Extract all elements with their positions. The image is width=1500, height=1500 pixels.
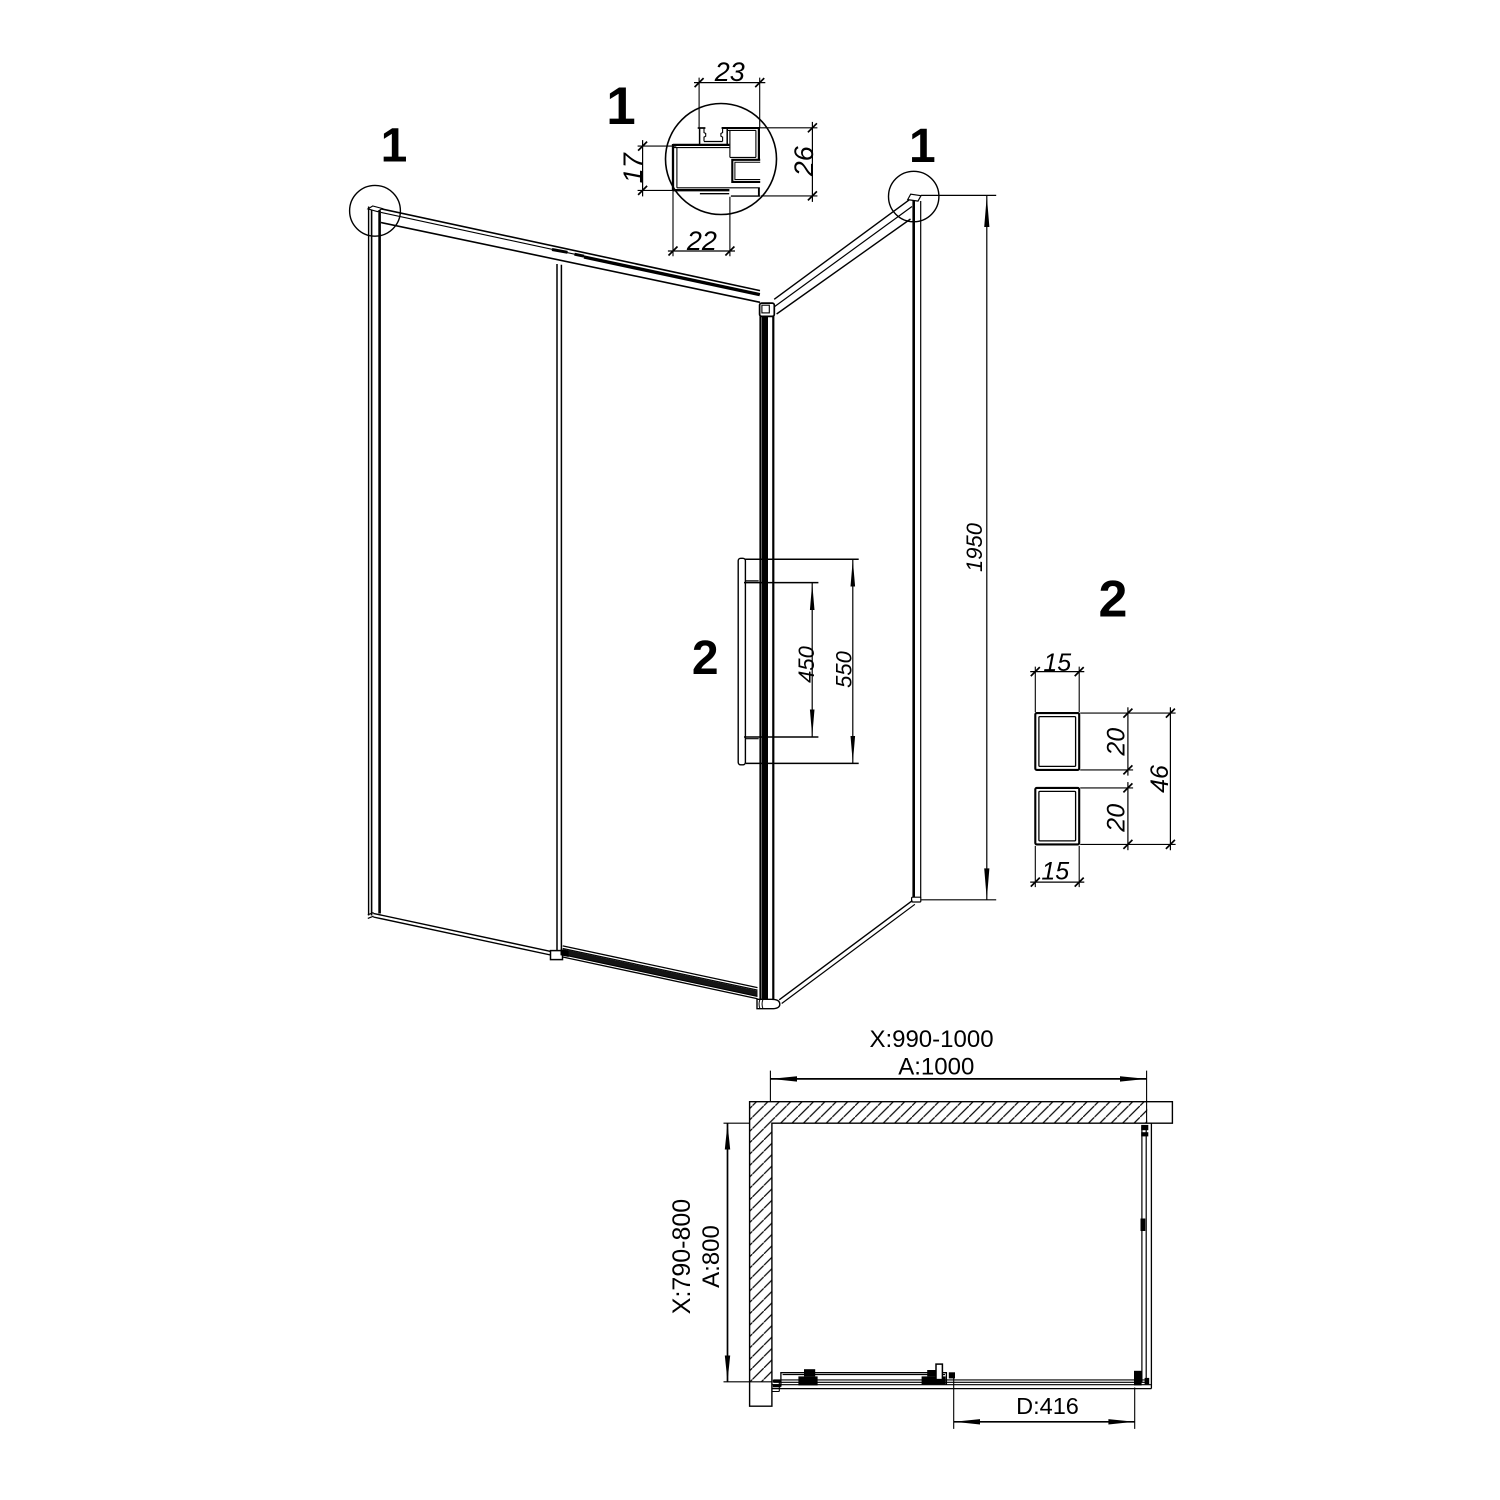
svg-text:26: 26 [789,145,819,177]
svg-text:1: 1 [909,120,936,173]
svg-text:1: 1 [381,120,408,173]
svg-text:A:800: A:800 [698,1225,725,1288]
svg-text:X:790-800: X:790-800 [668,1199,696,1314]
svg-text:20: 20 [1103,728,1131,757]
svg-text:23: 23 [714,57,745,87]
svg-text:450: 450 [794,645,819,682]
svg-text:550: 550 [831,650,856,687]
svg-text:46: 46 [1146,765,1174,793]
svg-text:15: 15 [1043,649,1071,677]
svg-text:2: 2 [692,632,719,685]
svg-text:A:1000: A:1000 [898,1054,974,1081]
svg-text:1950: 1950 [962,522,987,572]
svg-text:22: 22 [686,226,717,256]
svg-text:D:416: D:416 [1016,1393,1079,1419]
svg-text:2: 2 [1099,571,1128,629]
svg-text:17: 17 [618,152,648,183]
svg-text:1: 1 [606,77,635,136]
svg-text:20: 20 [1103,804,1131,833]
svg-text:15: 15 [1041,858,1069,886]
svg-text:X:990-1000: X:990-1000 [869,1026,993,1053]
